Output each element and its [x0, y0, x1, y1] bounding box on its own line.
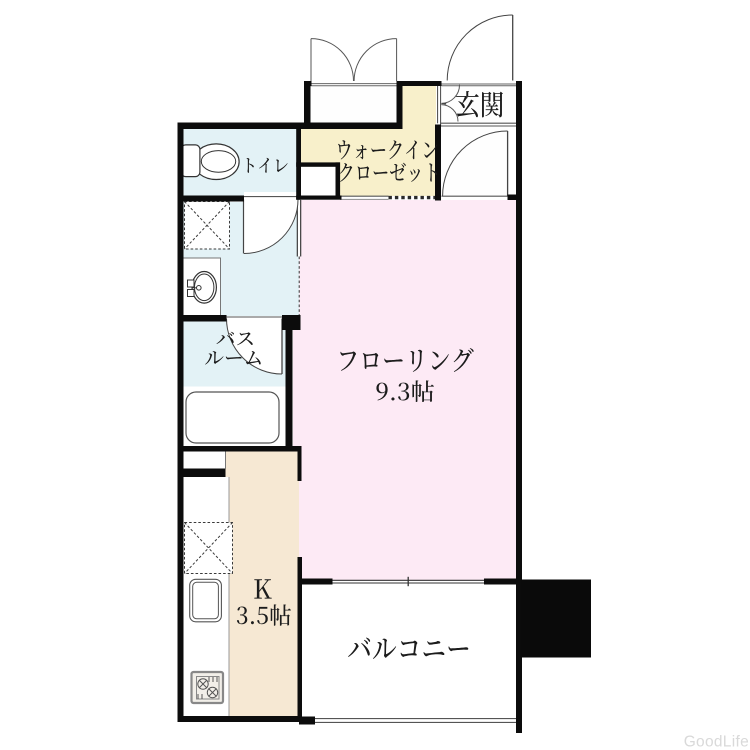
- svg-text:GoodLife: GoodLife: [684, 734, 749, 750]
